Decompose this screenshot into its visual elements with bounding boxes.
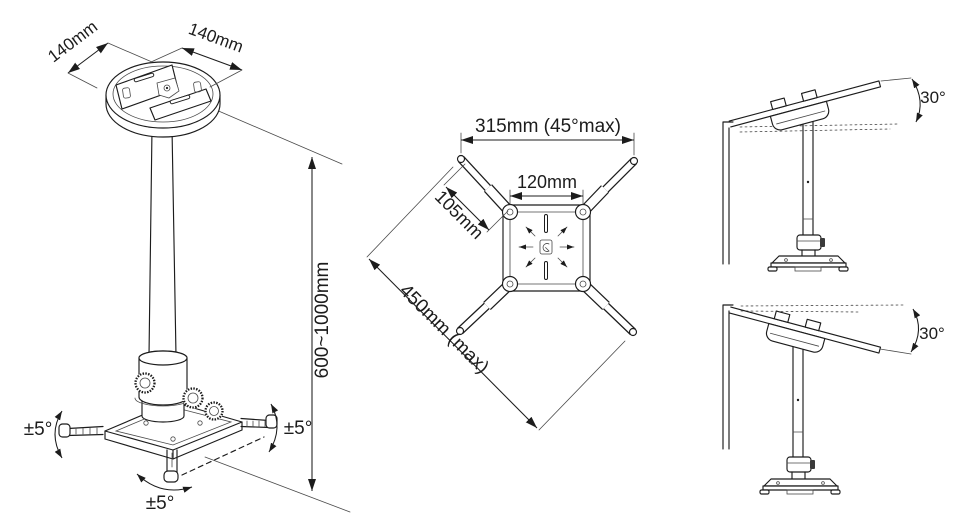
- extension-pole: [149, 128, 176, 356]
- wall: [723, 305, 733, 449]
- adjustment-knob-right[interactable]: [205, 402, 224, 421]
- left-arm: [59, 424, 103, 437]
- dim-label-height-range: 600~1000mm: [312, 262, 333, 379]
- dim-label-arm-length: 105mm: [431, 186, 488, 243]
- dim-label-max-width: 315mm (45°max): [475, 116, 621, 137]
- base-head: [768, 235, 848, 271]
- front-leg: [164, 450, 178, 482]
- ceiling-plate-disc: [106, 62, 220, 137]
- angle-label-down: 30°: [919, 324, 945, 343]
- dimension-120: 120mm: [510, 172, 583, 204]
- adjustment-knob-left[interactable]: [135, 373, 156, 394]
- perspective-view: 140mm 140mm 600~1000mm ±5° ±5° ±5°: [24, 17, 350, 514]
- swing-dashed-line: [182, 437, 264, 475]
- dim-label-max-diagonal: 450mm (max): [395, 280, 493, 378]
- dim-label-140mm-left: 140mm: [44, 17, 101, 66]
- angle-arc-down: [911, 309, 919, 352]
- top-view: 315mm (45°max) 120mm 105mm 450mm (max): [367, 116, 638, 430]
- angle-arc-up: [912, 79, 920, 122]
- angle-label-up: 30°: [920, 88, 946, 107]
- sloped-ceiling-rail: [725, 299, 882, 368]
- pole: [803, 121, 813, 237]
- tilt-head: [135, 351, 224, 422]
- dimension-height: 600~1000mm: [312, 157, 333, 491]
- side-view-tilt-up: 30°: [723, 73, 946, 271]
- height-leader-bottom: [205, 457, 350, 512]
- base-head: [760, 457, 840, 494]
- technical-drawing-page: 140mm 140mm 600~1000mm ±5° ±5° ±5°: [0, 0, 960, 524]
- right-arm: [241, 415, 277, 428]
- label-tilt-right: ±5°: [284, 418, 313, 439]
- dim-label-140mm-right: 140mm: [186, 19, 246, 56]
- horizontal-reference: [741, 305, 903, 312]
- dimension-315: 315mm (45°max): [461, 116, 634, 155]
- horizontal-reference: [740, 124, 898, 132]
- dim-label-plate-size: 120mm: [517, 172, 577, 192]
- label-swivel-bottom: ±5°: [146, 493, 175, 514]
- adjustment-knob-middle[interactable]: [183, 388, 204, 409]
- mount-dimension-diagram: 140mm 140mm 600~1000mm ±5° ±5° ±5°: [0, 0, 960, 524]
- label-tilt-left: ±5°: [24, 419, 53, 440]
- side-view-tilt-down: 30°: [723, 299, 945, 494]
- wall: [723, 122, 733, 264]
